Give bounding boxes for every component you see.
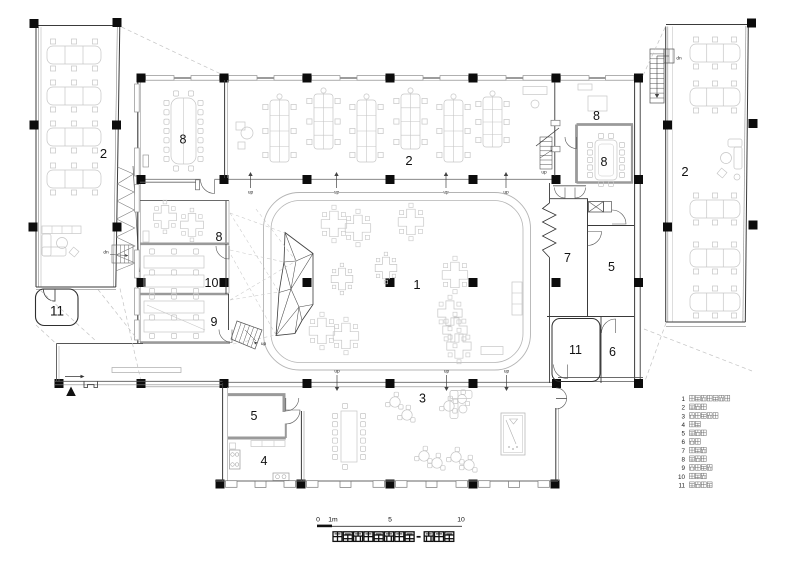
svg-text:8: 8 [180, 133, 187, 147]
svg-text:6: 6 [609, 345, 616, 359]
svg-text:11: 11 [678, 483, 685, 490]
svg-text:3: 3 [419, 392, 426, 406]
svg-text:4: 4 [261, 454, 268, 468]
svg-text:5: 5 [251, 409, 258, 423]
svg-text:up: up [443, 191, 449, 196]
svg-text:2: 2 [681, 164, 688, 179]
svg-text:9: 9 [681, 465, 685, 472]
svg-text:5: 5 [388, 517, 392, 524]
svg-text:2: 2 [100, 146, 107, 161]
svg-text:up: up [504, 370, 510, 375]
svg-text:7: 7 [564, 251, 571, 265]
svg-text:6: 6 [681, 439, 685, 446]
svg-text:5: 5 [681, 431, 685, 438]
svg-text:up: up [248, 191, 254, 196]
svg-text:11: 11 [569, 343, 582, 357]
svg-text:5: 5 [608, 260, 615, 274]
svg-text:dn: dn [676, 56, 682, 62]
svg-text:1: 1 [681, 396, 685, 403]
svg-text:up: up [261, 342, 267, 347]
svg-text:4: 4 [681, 422, 685, 429]
svg-text:2: 2 [405, 153, 412, 168]
svg-text:1: 1 [413, 277, 420, 292]
svg-text:up: up [334, 191, 340, 196]
svg-text:up: up [334, 370, 340, 375]
svg-text:2: 2 [681, 405, 685, 412]
svg-text:3: 3 [681, 413, 685, 420]
svg-text:dn: dn [103, 250, 109, 256]
svg-text:8: 8 [216, 230, 223, 244]
svg-text:9: 9 [211, 315, 218, 329]
svg-text:10: 10 [678, 474, 686, 481]
svg-text:7: 7 [681, 448, 685, 455]
svg-text:up: up [541, 171, 547, 176]
svg-text:8: 8 [601, 155, 608, 169]
svg-text:8: 8 [593, 109, 600, 123]
svg-text:8: 8 [681, 457, 685, 464]
svg-text:1m: 1m [328, 517, 338, 524]
svg-text:10: 10 [205, 276, 219, 290]
svg-text:up: up [444, 370, 450, 375]
svg-text:0: 0 [316, 517, 320, 524]
svg-text:10: 10 [457, 517, 465, 524]
